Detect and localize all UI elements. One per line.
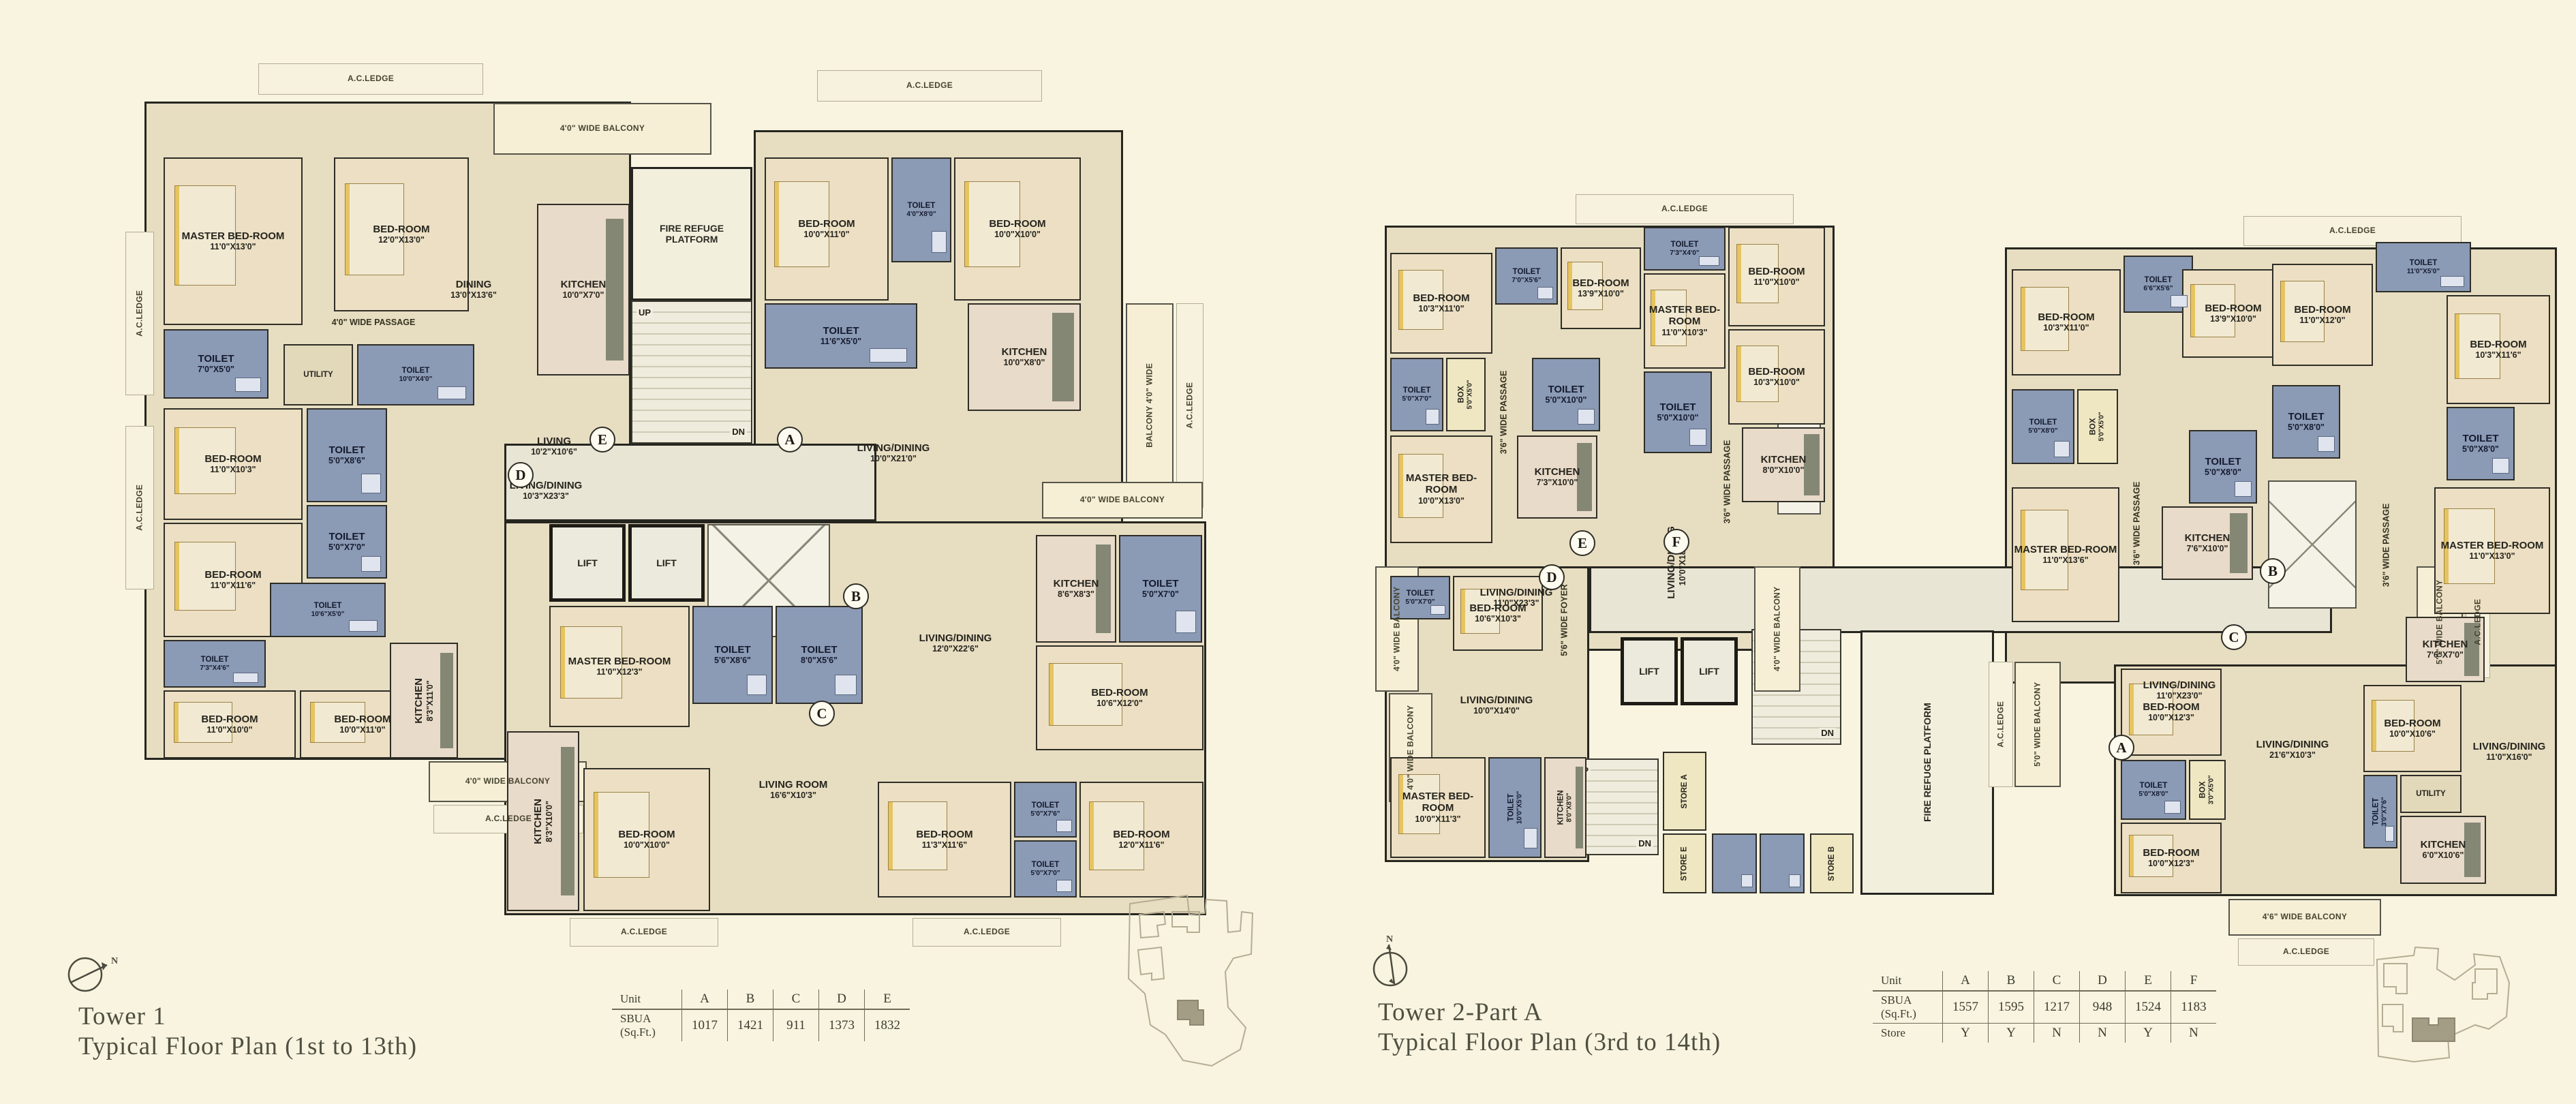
table-cell: 1832: [865, 1009, 910, 1041]
room-kitchen: KITCHEN7'6"X7'0": [2406, 617, 2485, 682]
room-toilet: TOILET5'0"X8'0": [2189, 430, 2257, 504]
room-bed-room: BED-ROOM10'3"X11'0": [2012, 269, 2121, 375]
room-master-bed-room: MASTER BED-ROOM10'0"X13'0": [1390, 435, 1492, 543]
room-toilet: TOILET5'0"X7'6": [1014, 782, 1077, 838]
lift: LIFT: [1621, 637, 1678, 705]
table-cell: Y: [1989, 1024, 2034, 1043]
room-bed-room: BED-ROOM10'0"X10'0": [954, 157, 1081, 301]
unit-marker-d: D: [1539, 564, 1565, 590]
room-toilet: TOILET5'0"X8'6": [307, 408, 387, 502]
room-bed-room: BED-ROOM12'0"X11'6": [1079, 782, 1203, 898]
tower2-title-line2: Typical Floor Plan (3rd to 14th): [1378, 1028, 1721, 1057]
room-toilet: TOILET5'0"X7'0": [1390, 576, 1450, 619]
room-5-0-wide-balcony: 5'0" WIDE BALCONY: [2014, 662, 2061, 787]
tower1-plan: FIRE REFUGE PLATFORMUPDNLIFTLIFTA.C.LEDG…: [125, 58, 1209, 957]
room-bed-room: BED-ROOM13'9"X10'0": [1561, 247, 1641, 329]
room-3-6-wide-passage: 3'6" WIDE PASSAGE: [2123, 465, 2149, 581]
room-toilet: TOILET7'0"X5'0": [164, 329, 269, 399]
room-box: BOX5'0"X5'0": [1446, 358, 1486, 431]
table-cell: N: [2080, 1024, 2126, 1043]
unit-marker-b: B: [843, 583, 869, 609]
room-toilet: TOILET5'0"X8'0": [2012, 389, 2074, 464]
room-toilet: TOILET5'0"X7'0": [1390, 358, 1443, 431]
table-header-cell: Unit: [1873, 971, 1943, 991]
tower2-table: UnitABCDEFSBUA (Sq.Ft.)15571595121794815…: [1873, 971, 2216, 1043]
room-bed-room: BED-ROOM10'6"X10'3": [1453, 576, 1543, 651]
table-cell: 1017: [682, 1009, 728, 1041]
table-header-cell: A: [1943, 971, 1989, 991]
room-a-c-ledge: A.C.LEDGE: [1989, 662, 2013, 787]
table-header-cell: A: [682, 990, 728, 1009]
unit-marker-c: C: [809, 701, 835, 726]
unit-marker-a: A: [777, 427, 803, 453]
table-cell: 911: [773, 1009, 819, 1041]
table-cell: Store: [1873, 1024, 1943, 1043]
unit-marker-c: C: [2221, 624, 2247, 650]
room-master-bed-room: MASTER BED-ROOM10'0"X11'3": [1390, 757, 1486, 858]
room-master-bed-room: MASTER BED-ROOM11'0"X12'3": [549, 606, 690, 727]
table-header-cell: E: [865, 990, 910, 1009]
room-3-6-wide-passage: 3'6" WIDE PASSAGE: [1715, 427, 1739, 536]
table-cell: N: [2171, 1024, 2217, 1043]
room-4-0-wide-balcony: 4'0" WIDE BALCONY: [1754, 566, 1800, 692]
room-bed-room: BED-ROOM10'0"X12'3": [2121, 823, 2222, 893]
room-master-bed-room: MASTER BED-ROOM11'0"X13'0": [164, 157, 303, 325]
unit-marker-d: D: [508, 462, 534, 488]
room-toilet: TOILET11'6"X5'0": [765, 303, 917, 369]
table-header-cell: C: [773, 990, 819, 1009]
table-cell: 1373: [819, 1009, 865, 1041]
room-kitchen: KITCHEN8'3"X11'0": [390, 643, 458, 758]
room-master-bed-room: MASTER BED-ROOM11'0"X10'3": [1644, 273, 1726, 369]
room-kitchen: KITCHEN8'3"X10'0": [507, 731, 579, 911]
room-bed-room: BED-ROOM13'9"X10'0": [2182, 269, 2284, 358]
unit-marker-e: E: [1569, 530, 1595, 556]
room-store-a: STORE A: [1663, 752, 1706, 831]
room-bed-room: BED-ROOM11'0"X10'0": [1728, 227, 1825, 326]
tower1-title-line1: Tower 1: [78, 1002, 166, 1031]
table-cell: 1217: [2034, 991, 2080, 1024]
table-cell: N: [2034, 1024, 2080, 1043]
table-cell: 1183: [2171, 991, 2217, 1024]
table-cell: 1524: [2126, 991, 2171, 1024]
room-a-c-ledge: A.C.LEDGE: [913, 918, 1061, 947]
page: { "colors":{"page_bg":"#f8f4e0","floor":…: [0, 0, 2576, 1104]
room-toilet: TOILET10'0"X5'0": [1488, 757, 1542, 858]
svg-text:N: N: [111, 956, 118, 966]
table-cell: 948: [2080, 991, 2126, 1024]
table-header-cell: D: [2080, 971, 2126, 991]
room-toilet: TOILET5'0"X7'0": [1119, 535, 1202, 643]
room-toilet: TOILET10'0"X4'0": [357, 344, 474, 405]
room-toilet: TOILET5'0"X8'0": [2121, 760, 2186, 820]
room-3-6-wide-passage: 3'6" WIDE PASSAGE: [1491, 358, 1516, 467]
room-balcony-4-0-wide: BALCONY 4'0" WIDE: [1126, 303, 1174, 508]
room-toilet: TOILET8'0"X5'6": [776, 606, 863, 704]
table-cell: Y: [1943, 1024, 1989, 1043]
room-toilet: TOILET7'3"X4'6": [164, 640, 266, 688]
room-a-c-ledge: A.C.LEDGE: [570, 918, 718, 947]
room-a-c-ledge: A.C.LEDGE: [817, 70, 1042, 102]
room-bed-room: BED-ROOM10'3"X10'0": [1728, 329, 1825, 425]
room-bed-room: BED-ROOM11'0"X12'0": [2272, 264, 2373, 366]
unit-marker-b: B: [2260, 558, 2286, 584]
shaft: [2268, 480, 2357, 609]
room-4-0-wide-passage: 4'0" WIDE PASSAGE: [273, 305, 474, 340]
room-kitchen: KITCHEN7'6"X10'0": [2162, 506, 2253, 580]
room-3-6-wide-passage: 3'6" WIDE PASSAGE: [2373, 487, 2399, 603]
room-kitchen: KITCHEN6'0"X10'6": [2400, 816, 2486, 884]
tower2-caption: N Tower 2-Part A Typical Floor Plan (3rd…: [1363, 932, 1881, 1069]
table-header-cell: B: [1989, 971, 2034, 991]
tower1-table: UnitABCDESBUA (Sq.Ft.)101714219111373183…: [612, 990, 910, 1041]
key-plan-tower1: [1124, 891, 1264, 1079]
room-a-c-ledge: A.C.LEDGE: [1576, 194, 1794, 224]
room-kitchen: KITCHEN7'3"X10'0": [1517, 435, 1597, 519]
room-bed-room: BED-ROOM10'0"X12'3": [2121, 669, 2222, 756]
staircase: UPDN: [631, 301, 752, 444]
room-a-c-ledge: A.C.LEDGE: [125, 426, 154, 589]
north-icon-tower1: N: [65, 953, 123, 996]
room-bed-room: BED-ROOM10'3"X11'0": [1390, 253, 1492, 354]
tower1-caption: N Tower 1 Typical Floor Plan (1st to 13t…: [65, 953, 583, 1075]
tower2-plan: FIRE REFUGE PLATFORMUPDNUPDNLIFTLIFTA.C.…: [1371, 187, 2571, 978]
room-utility: UTILITY: [283, 344, 353, 405]
room-bed-room: BED-ROOM10'3"X11'6": [2447, 295, 2550, 404]
table-cell: 1557: [1943, 991, 1989, 1024]
room-toilet: TOILET4'0"X8'0": [891, 157, 951, 262]
tower1-data-table: UnitABCDESBUA (Sq.Ft.)101714219111373183…: [612, 990, 910, 1041]
tower2-title-line1: Tower 2-Part A: [1378, 998, 1543, 1027]
room-kitchen: KITCHEN8'0"X10'0": [1742, 427, 1825, 502]
table-header-cell: Unit: [612, 990, 682, 1009]
room-living-room: LIVING ROOM16'6"X10'3": [713, 708, 874, 872]
room-toilet: TOILET11'0"X5'0": [2376, 242, 2471, 292]
table-cell: SBUA (Sq.Ft.): [1873, 991, 1943, 1024]
room-living-dining: LIVING/DINING10'0"X14'0": [1439, 658, 1554, 753]
room-bed-room: BED-ROOM11'0"X10'0": [164, 690, 296, 758]
room-toilet: TOILET5'0"X8'0": [2447, 407, 2515, 480]
room-area: [1712, 833, 1757, 893]
table-cell: SBUA (Sq.Ft.): [612, 1009, 682, 1041]
room-store-e: STORE E: [1663, 833, 1706, 893]
room-bed-room: BED-ROOM10'0"X10'0": [583, 768, 710, 911]
tower2-data-table: UnitABCDEFSBUA (Sq.Ft.)15571595121794815…: [1873, 971, 2216, 1043]
lift: LIFT: [628, 524, 705, 602]
table-header-cell: D: [819, 990, 865, 1009]
slab-frp: FIRE REFUGE PLATFORM: [631, 167, 752, 301]
room-box: BOX5'0"X5'0": [2077, 389, 2118, 464]
unit-marker-e: E: [589, 427, 615, 453]
room-4-6-wide-balcony: 4'6" WIDE BALCONY: [2228, 899, 2381, 936]
room-utility: UTILITY: [2400, 775, 2462, 813]
room-a-c-ledge: A.C.LEDGE: [258, 63, 483, 95]
room-toilet: TOILET5'0"X8'0": [2272, 385, 2340, 459]
table-header-cell: F: [2171, 971, 2217, 991]
room-toilet: TOILET5'0"X10'0": [1644, 371, 1712, 453]
table-cell: 1421: [728, 1009, 773, 1041]
room-bed-room: BED-ROOM10'0"X10'6": [2363, 685, 2462, 772]
room-living-dining: LIVING/DINING11'0"X16'0": [2464, 685, 2554, 818]
room-a-c-ledge: A.C.LEDGE: [2238, 938, 2374, 966]
svg-text:N: N: [1386, 934, 1393, 945]
room-4-0-wide-balcony: 4'0" WIDE BALCONY: [1042, 482, 1203, 519]
room-kitchen: KITCHEN10'0"X7'0": [537, 204, 630, 375]
room-living-dining: LIVING/DINING12'0"X22'6": [878, 535, 1033, 752]
room-bed-room: BED-ROOM11'0"X10'3": [164, 408, 303, 520]
table-header-cell: C: [2034, 971, 2080, 991]
table-header-cell: B: [728, 990, 773, 1009]
unit-marker-a: A: [2109, 735, 2134, 761]
slab-frp: FIRE REFUGE PLATFORM: [1860, 630, 1994, 895]
room-box: BOX3'0"X5'0": [2189, 760, 2226, 820]
room-living-dining: LIVING/DINING10'0"X21'0": [781, 371, 1006, 535]
room-4-0-wide-balcony: 4'0" WIDE BALCONY: [493, 103, 711, 155]
room-living-dining: LIVING/DINING10'0"X18'9": [1641, 480, 1712, 644]
room-toilet: TOILET5'6"X8'6": [692, 606, 773, 704]
room-toilet: TOILET5'0"X7'0": [307, 505, 387, 579]
unit-marker-f: F: [1663, 529, 1689, 555]
room-kitchen: KITCHEN8'0"X8'0": [1544, 757, 1586, 858]
room-store-b: STORE B: [1810, 833, 1854, 893]
room-toilet: TOILET5'0"X10'0": [1532, 358, 1600, 431]
room-toilet: TOILET7'0"X5'6": [1495, 247, 1558, 305]
room-master-bed-room: MASTER BED-ROOM11'0"X13'6": [2012, 487, 2119, 622]
room-a-c-ledge: A.C.LEDGE: [1176, 303, 1203, 508]
room-bed-room: BED-ROOM10'0"X11'0": [765, 157, 889, 301]
room-toilet: TOILET3'0"X7'6": [2363, 775, 2397, 848]
room-kitchen: KITCHEN8'6"X8'3": [1036, 535, 1116, 643]
key-plan-tower2: [2373, 942, 2533, 1082]
room-a-c-ledge: A.C.LEDGE: [125, 232, 154, 395]
tower1-title-line2: Typical Floor Plan (1st to 13th): [78, 1032, 417, 1061]
room-master-bed-room: MASTER BED-ROOM11'0"X13'0": [2434, 487, 2550, 614]
room-area: [1760, 833, 1805, 893]
lift: LIFT: [1681, 637, 1738, 705]
room-living-dining: LIVING/DINING21'6"X10'3": [2224, 685, 2361, 814]
room-bed-room: BED-ROOM10'6"X12'0": [1036, 645, 1203, 750]
table-cell: Y: [2126, 1024, 2171, 1043]
room-bed-room: BED-ROOM11'3"X11'6": [878, 782, 1011, 898]
table-header-cell: E: [2126, 971, 2171, 991]
room-toilet: TOILET5'0"X7'0": [1014, 840, 1077, 898]
room-toilet: TOILET7'3"X4'0": [1644, 227, 1726, 271]
table-cell: 1595: [1989, 991, 2034, 1024]
room-toilet: TOILET10'6"X5'0": [270, 583, 386, 637]
north-icon-tower2: N: [1368, 932, 1416, 995]
